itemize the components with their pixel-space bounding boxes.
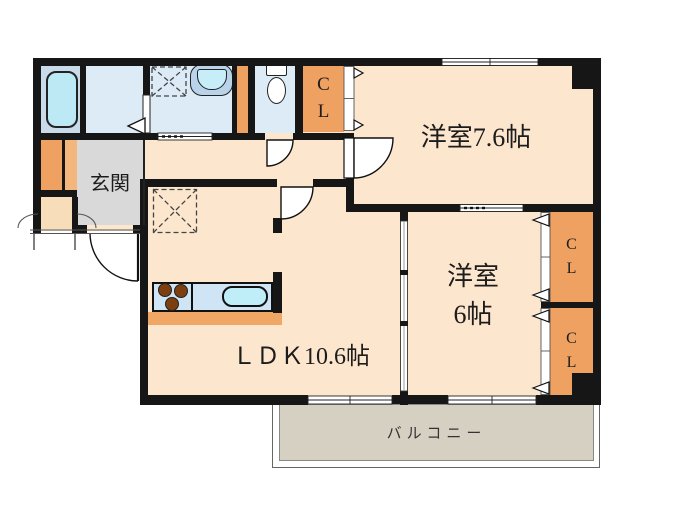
closet-2-letter-c: C	[550, 327, 593, 351]
porch-threshold	[18, 214, 140, 250]
toilet-door	[267, 140, 293, 166]
window-room76-top	[442, 59, 538, 66]
closet-2-letter-l: L	[550, 351, 593, 375]
room6-label: 洋室 6帖	[403, 258, 543, 334]
sliding-door-washroom	[158, 133, 212, 140]
floorplan-symbols	[0, 0, 700, 525]
room6-label-line1: 洋室	[403, 258, 543, 296]
closet-1-letter-l: L	[550, 257, 593, 281]
closet-top-doors	[344, 67, 363, 131]
room76-label: 洋室7.6帖	[386, 117, 566, 154]
entrance-label: 玄関	[78, 167, 142, 196]
window-ldk-south	[308, 396, 392, 404]
refrigerator-dashed-square	[154, 190, 197, 233]
sliding-door-rooms	[460, 205, 523, 212]
closet-2-label: C L	[550, 327, 593, 375]
bath-door	[128, 95, 150, 134]
ldk-label: ＬＤＫ10.6帖	[171, 336, 431, 371]
closet-1-label: C L	[550, 233, 593, 281]
front-door	[90, 233, 138, 281]
washer-pan-dashed-square	[152, 67, 186, 96]
floorplan: バルコニー	[0, 0, 700, 525]
ldk-door	[281, 187, 313, 219]
closet-top-letter-l: L	[303, 98, 344, 125]
closet-top-letter-c: C	[303, 71, 344, 98]
closet-top-label: C L	[303, 71, 344, 125]
closet-1-letter-c: C	[550, 233, 593, 257]
room6-label-line2: 6帖	[403, 296, 543, 334]
window-room6-south	[448, 396, 536, 404]
